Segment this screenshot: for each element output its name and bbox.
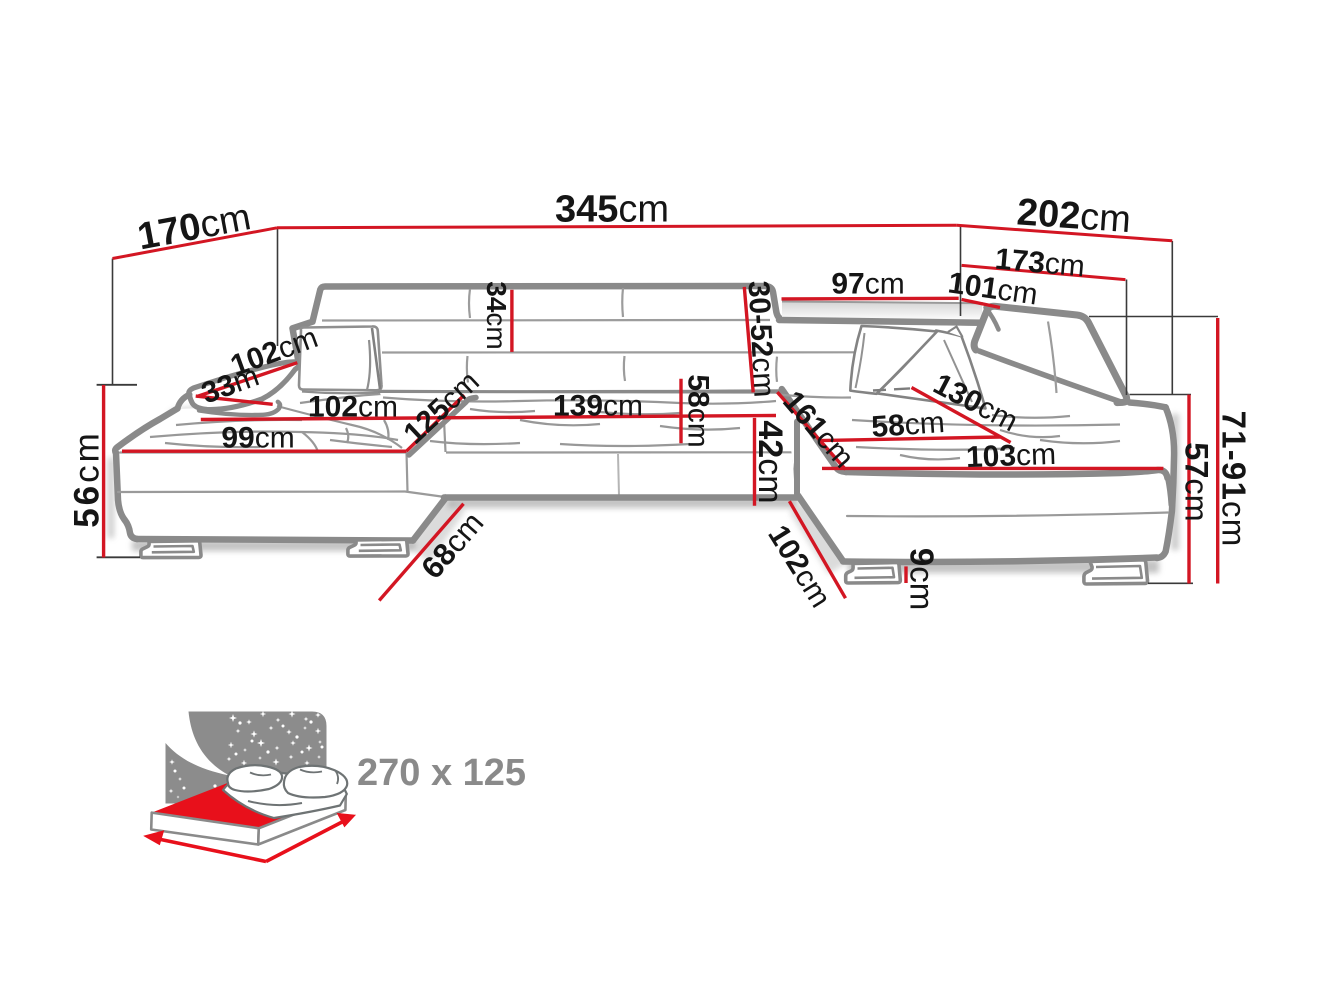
svg-text:42cm: 42cm	[751, 420, 789, 503]
svg-text:99cm: 99cm	[221, 422, 294, 455]
svg-text:97cm: 97cm	[831, 268, 904, 301]
svg-text:58cm: 58cm	[870, 406, 945, 444]
svg-text:57cm: 57cm	[1179, 442, 1215, 521]
svg-text:170cm: 170cm	[134, 196, 254, 258]
svg-text:56cm: 56cm	[67, 430, 106, 528]
svg-text:71-91cm: 71-91cm	[1215, 411, 1252, 548]
svg-text:34cm: 34cm	[481, 281, 512, 349]
svg-text:270 x 125: 270 x 125	[357, 752, 526, 794]
svg-text:30-52cm: 30-52cm	[741, 280, 780, 398]
svg-text:202cm: 202cm	[1016, 191, 1133, 241]
svg-text:103cm: 103cm	[965, 438, 1056, 474]
svg-text:9cm: 9cm	[903, 548, 940, 610]
svg-text:345cm: 345cm	[555, 188, 669, 230]
svg-text:58cm: 58cm	[682, 374, 715, 447]
svg-text:102cm: 102cm	[308, 391, 398, 424]
svg-text:139cm: 139cm	[553, 390, 643, 423]
